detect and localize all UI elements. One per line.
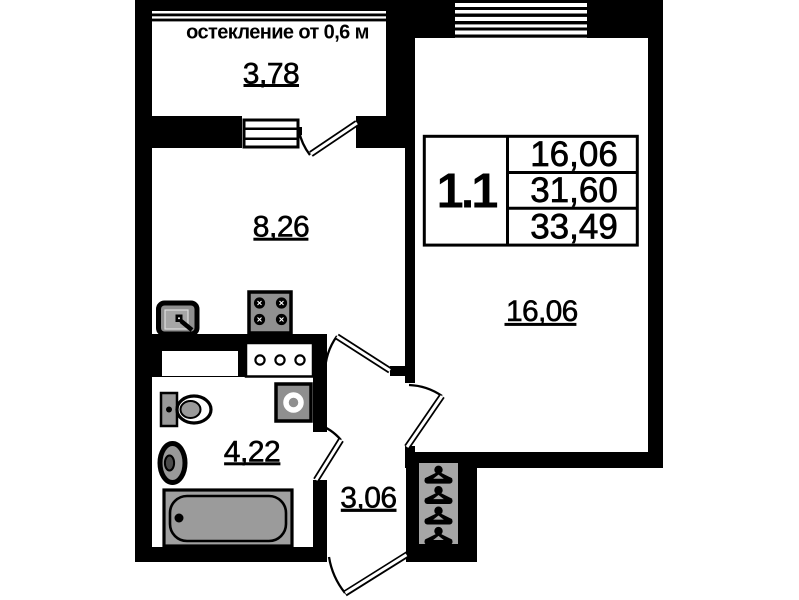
svg-text:33,49: 33,49 [530, 208, 618, 247]
svg-text:1.1: 1.1 [436, 165, 497, 219]
svg-text:остекление от 0,6 м: остекление от 0,6 м [186, 22, 369, 44]
svg-text:31,60: 31,60 [530, 171, 618, 210]
svg-text:16,06: 16,06 [530, 135, 618, 174]
